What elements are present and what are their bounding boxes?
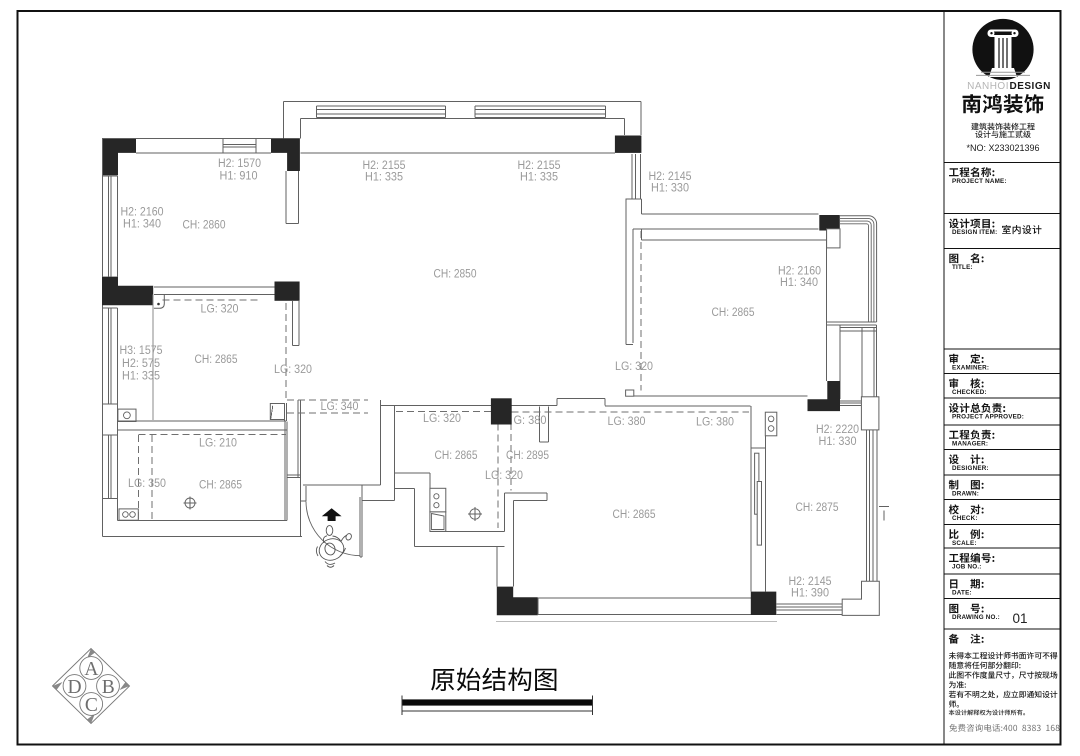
- svg-text:DRAWING NO.:: DRAWING NO.:: [952, 614, 1000, 621]
- svg-text:NANHOI: NANHOI: [967, 81, 1009, 92]
- svg-text:DESIGN: DESIGN: [1010, 81, 1051, 92]
- svg-text:TITLE:: TITLE:: [952, 264, 973, 271]
- svg-text:CH: 2850: CH: 2850: [434, 267, 477, 281]
- svg-text:DATE:: DATE:: [952, 590, 972, 597]
- svg-text:CH: 2865: CH: 2865: [712, 305, 755, 319]
- svg-text:LG: 380: LG: 380: [608, 414, 646, 428]
- svg-text:LG: 320: LG: 320: [485, 468, 523, 482]
- svg-text:H1: 330: H1: 330: [819, 434, 857, 448]
- svg-text:LG: 210: LG: 210: [199, 436, 237, 450]
- svg-text:JOB NO.:: JOB NO.:: [952, 564, 982, 571]
- svg-text:C: C: [85, 695, 98, 716]
- svg-text:EXAMINER:: EXAMINER:: [952, 365, 989, 372]
- svg-text:H1: 335: H1: 335: [520, 170, 558, 184]
- svg-text:H3: 1575: H3: 1575: [120, 343, 163, 357]
- svg-text:CH: 2860: CH: 2860: [183, 218, 226, 232]
- svg-text:LG: 350: LG: 350: [128, 476, 166, 490]
- svg-text:SCALE:: SCALE:: [952, 540, 977, 547]
- svg-text:LG: 320: LG: 320: [615, 359, 653, 373]
- svg-text:DESIGNER:: DESIGNER:: [952, 465, 989, 472]
- svg-text:A: A: [84, 659, 98, 680]
- svg-text:H1: 335: H1: 335: [365, 170, 403, 184]
- svg-text:LG: 320: LG: 320: [201, 302, 239, 316]
- svg-text:LG: 340: LG: 340: [321, 399, 359, 413]
- svg-text:PROJECT APPROVED:: PROJECT APPROVED:: [952, 414, 1024, 421]
- svg-text:H1: 335: H1: 335: [122, 369, 160, 383]
- svg-text:CHECK:: CHECK:: [952, 515, 978, 522]
- svg-text:CH: 2895: CH: 2895: [506, 448, 549, 462]
- svg-text:CH: 2875: CH: 2875: [796, 500, 839, 514]
- svg-text:MANAGER:: MANAGER:: [952, 440, 988, 447]
- svg-text:D: D: [67, 677, 81, 698]
- svg-text:H1: 330: H1: 330: [651, 181, 689, 195]
- svg-text:CHECKED:: CHECKED:: [952, 389, 987, 396]
- svg-text:LG: 380: LG: 380: [696, 415, 734, 429]
- svg-text:*NO: X233021396: *NO: X233021396: [966, 143, 1039, 153]
- svg-text:LG: 320: LG: 320: [274, 362, 312, 376]
- svg-text:DRAWN:: DRAWN:: [952, 490, 979, 497]
- svg-text:H1: 390: H1: 390: [791, 586, 829, 600]
- svg-text:CH: 2865: CH: 2865: [435, 448, 478, 462]
- svg-text:H1: 340: H1: 340: [123, 217, 161, 231]
- svg-text:CH: 2865: CH: 2865: [613, 507, 656, 521]
- svg-text:B: B: [102, 677, 115, 698]
- svg-text:01: 01: [1013, 611, 1028, 626]
- svg-text:G: 380: G: 380: [514, 413, 547, 427]
- svg-text:LG: 320: LG: 320: [423, 411, 461, 425]
- svg-text:PROJECT NAME:: PROJECT NAME:: [952, 178, 1007, 185]
- svg-text:H1: 340: H1: 340: [780, 275, 818, 289]
- svg-text:H1: 910: H1: 910: [220, 169, 258, 183]
- svg-text:CH: 2865: CH: 2865: [195, 352, 238, 366]
- svg-text:CH: 2865: CH: 2865: [199, 478, 242, 492]
- svg-text:DESIGN ITEM:: DESIGN ITEM:: [952, 229, 997, 236]
